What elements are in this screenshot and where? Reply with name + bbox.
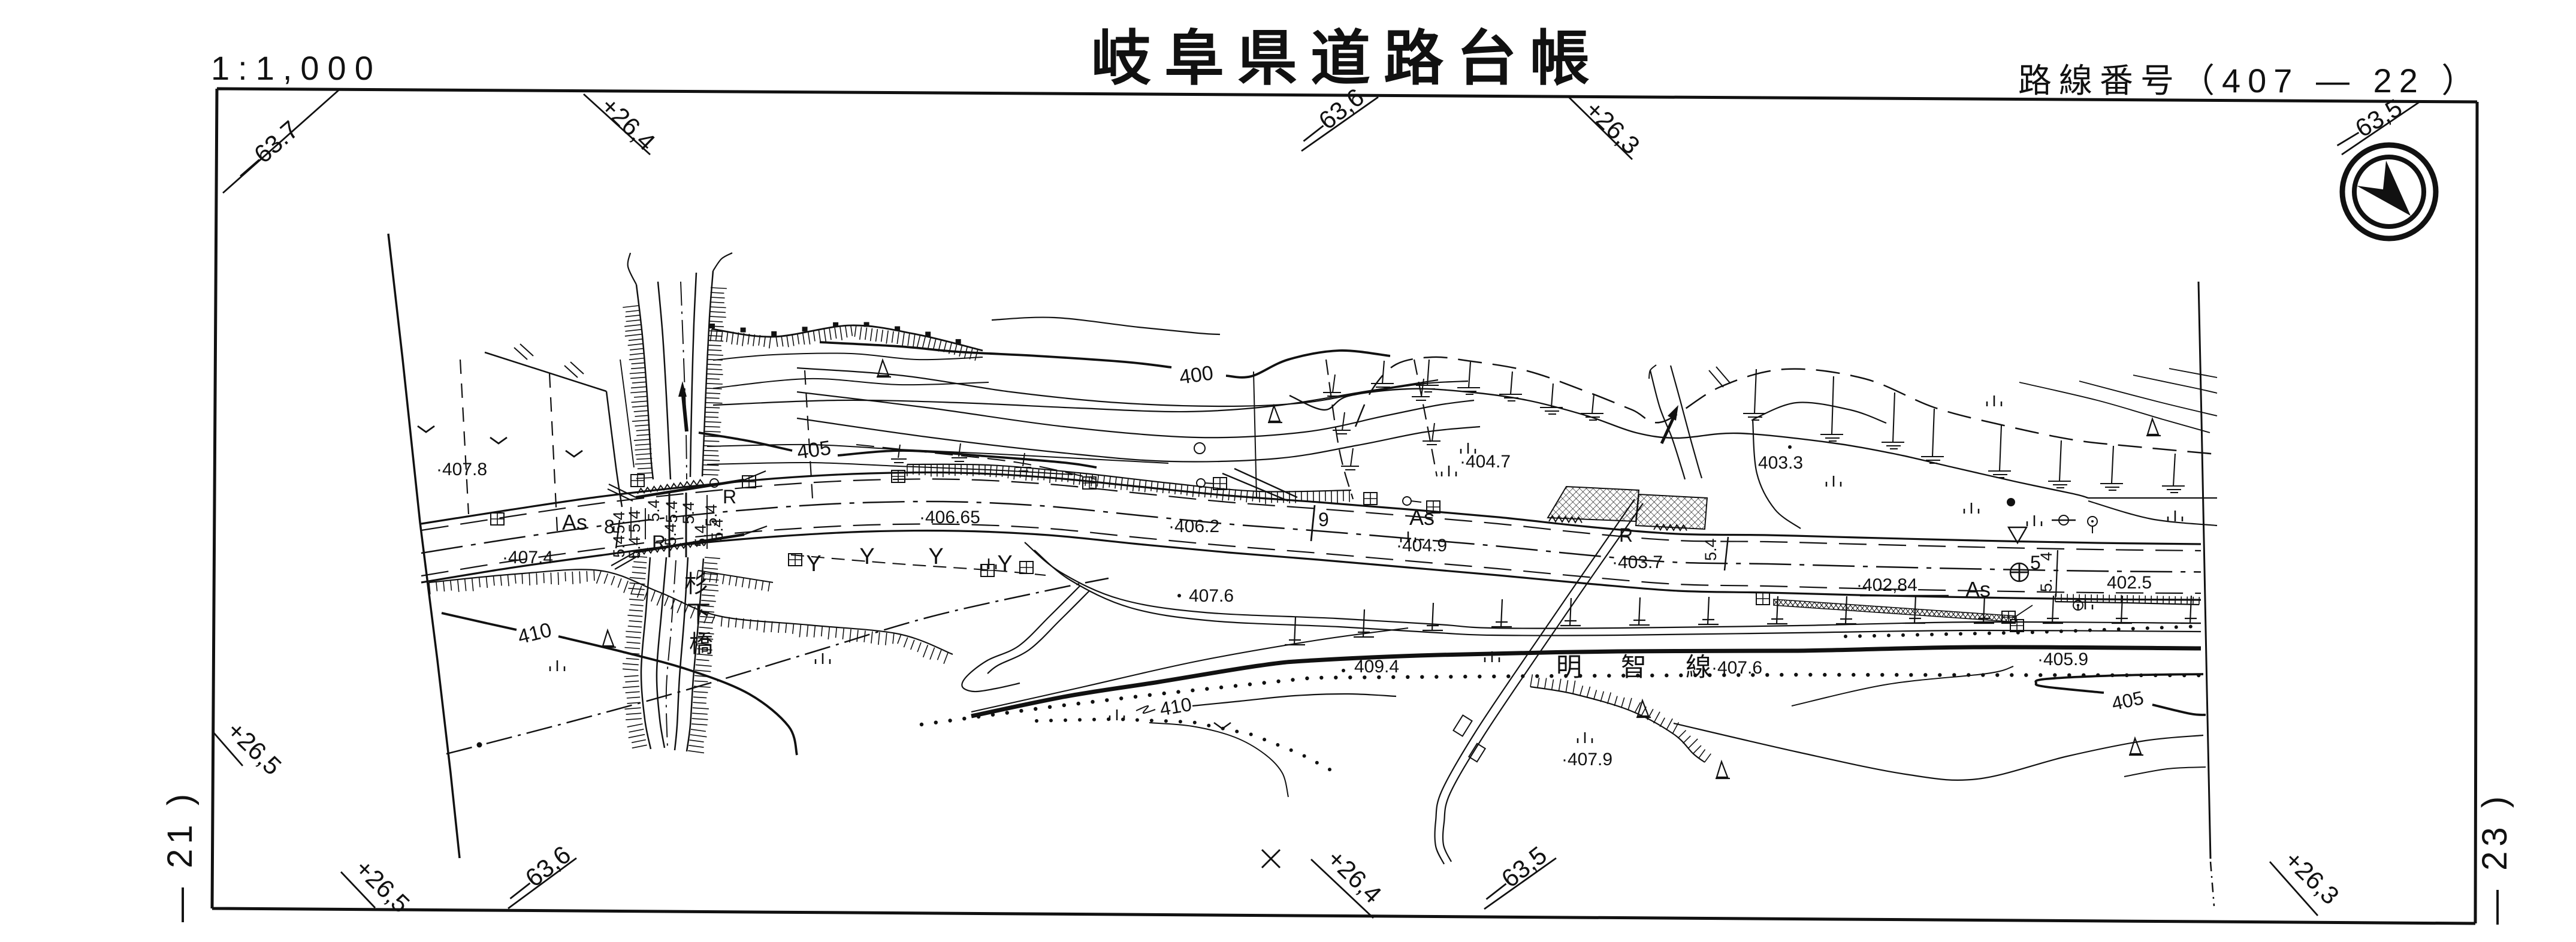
svg-text:路線番号（407 ― 22 ）: 路線番号（407 ― 22 ） [2018,62,2482,99]
svg-text:·406.65: ·406.65 [919,508,980,527]
svg-text:5.4: 5.4 [708,518,726,541]
svg-text:Y: Y [806,551,821,576]
svg-text:·407.4: ·407.4 [502,548,553,567]
svg-text:5.4: 5.4 [626,510,644,533]
svg-text:403.3: 403.3 [1758,453,1803,473]
svg-text:·404.9: ·404.9 [1396,536,1447,555]
svg-text:·407.8: ·407.8 [436,460,487,479]
svg-text:岐阜県道路台帳: 岐阜県道路台帳 [1091,25,1603,92]
svg-text:1:1,000: 1:1,000 [211,49,382,87]
svg-text:Y: Y [928,544,943,569]
svg-text:R: R [652,532,666,553]
svg-text:405: 405 [796,436,832,464]
svg-text:As: As [1965,577,1991,602]
svg-text:Y: Y [997,551,1012,576]
svg-text:5.4: 5.4 [691,524,709,547]
svg-text:― 21 ): ― 21 ) [161,789,200,922]
svg-text:As: As [1409,505,1435,530]
svg-text:·404.7: ·404.7 [1460,452,1511,472]
svg-text:·407.9: ·407.9 [1562,750,1612,769]
svg-text:·406.2: ·406.2 [1168,517,1219,536]
svg-text:·403.7: ·403.7 [1612,552,1663,572]
svg-text:5.4: 5.4 [626,536,644,559]
svg-text:402.5: 402.5 [2107,573,2152,593]
svg-text:·402,84: ·402,84 [1856,575,1917,595]
svg-text:4: 4 [2037,552,2055,561]
svg-text:As: As [562,510,587,535]
svg-text:5.4: 5.4 [663,500,681,523]
svg-text:Y: Y [859,544,874,569]
svg-text:9: 9 [1318,509,1329,530]
svg-text:·405.9: ·405.9 [2037,650,2088,669]
svg-text:智: 智 [1621,653,1647,682]
svg-text:明: 明 [1556,653,1582,682]
svg-text:5.4: 5.4 [645,499,663,522]
svg-text:409.4: 409.4 [1354,657,1399,677]
svg-text:― 23 ): ― 23 ) [2475,792,2514,925]
svg-text:5.: 5. [2037,578,2055,592]
svg-text:5.4: 5.4 [680,502,697,524]
svg-text:407.6: 407.6 [1189,586,1234,606]
svg-text:5.4: 5.4 [1702,538,1720,561]
svg-text:R: R [723,486,736,508]
svg-text:線: 線 [1686,653,1711,682]
svg-text:400: 400 [1178,361,1215,389]
